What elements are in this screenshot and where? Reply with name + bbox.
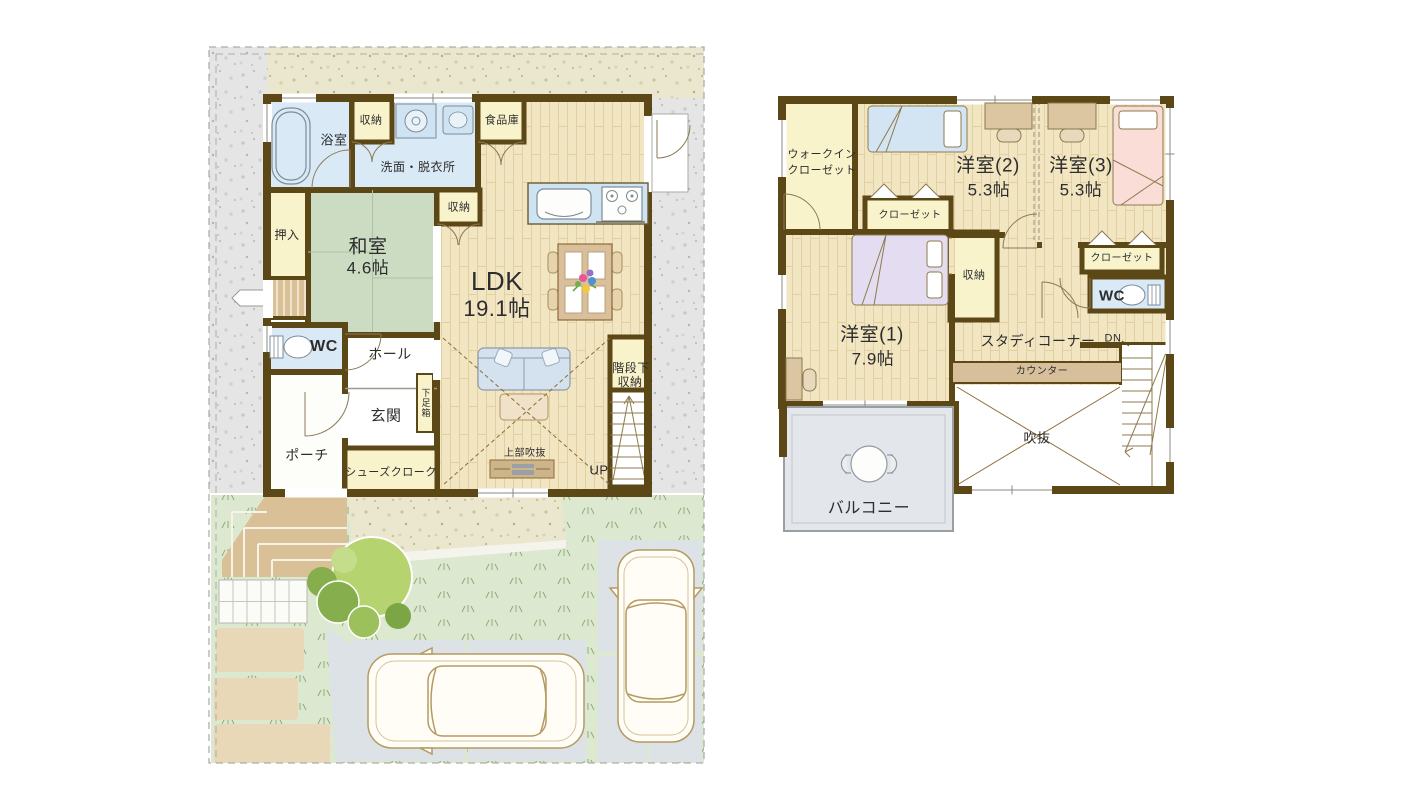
room-label-storage-top: 収納 (360, 116, 383, 127)
floorplan-page: 浴室 収納 洗面・脱衣所 食品庫 押入 和室 4.6帖 収納 LDK 19.1帖… (0, 0, 1422, 800)
car-icon-horizontal (368, 648, 584, 754)
room-label-room3-size: 5.3帖 (1060, 182, 1103, 199)
label-upper-void: 上部吹抜 (504, 449, 546, 459)
gravel-strip-left (209, 47, 267, 493)
label-stairs-up: UP (589, 464, 608, 477)
room-label-study: スタディコーナー (980, 334, 1095, 348)
room-label-under-stairs-2: 収納 (617, 376, 642, 388)
engawa-steps (270, 278, 308, 318)
dining-table-icon (548, 244, 622, 320)
floor1-plan (232, 94, 690, 498)
room-label-wc-2f: WC (1099, 289, 1125, 304)
stairs-2f (1122, 341, 1170, 487)
room-label-genkan: 玄関 (370, 409, 401, 424)
kitchen-sink-icon (537, 189, 591, 219)
room-label-wic-2: クローゼット (788, 166, 857, 177)
sofa-icon (478, 348, 570, 390)
room-label-room2-size: 5.3帖 (968, 182, 1011, 199)
room-label-balcony: バルコニー (828, 501, 910, 517)
room1-door-gap (949, 238, 955, 274)
room-label-room3: 洋室(3) (1049, 157, 1113, 176)
gravel-strip-top (267, 47, 704, 98)
kitchen-counter (528, 183, 648, 224)
bed-icon-room2 (868, 106, 967, 152)
living-table-icon (500, 394, 548, 420)
room-label-shoes-cloak: シューズクローク (345, 468, 436, 479)
basin-icon (443, 106, 473, 134)
room-label-bathroom: 浴室 (320, 134, 347, 147)
floorplan-drawing (0, 0, 1422, 800)
room-label-closet3: クローゼット (1091, 254, 1154, 264)
car-icon-vertical (610, 550, 702, 742)
tv-board-icon (490, 460, 554, 478)
room-label-room1: 洋室(1) (840, 326, 904, 345)
label-counter: カウンター (1016, 367, 1069, 377)
room-label-oshiire: 押入 (274, 229, 299, 241)
room-label-getabako: 下足箱 (421, 388, 430, 418)
label-stairs-dn: DN (1105, 334, 1122, 345)
toilet-icon-2f (1119, 285, 1160, 305)
room-label-room1-size: 7.9帖 (852, 351, 895, 368)
room-label-room2: 洋室(2) (956, 157, 1020, 176)
room-label-porch: ポーチ (285, 448, 329, 462)
bed-icon-room1 (852, 235, 948, 305)
tile-paving (219, 580, 307, 623)
exterior-door (652, 114, 690, 192)
toilet-icon-1f (270, 336, 312, 358)
room-label-washroom: 洗面・脱衣所 (380, 161, 455, 173)
label-void: 吹抜 (1023, 432, 1050, 445)
room-label-closet2: クローゼット (879, 211, 942, 221)
room-porch (267, 372, 345, 493)
room-label-pantry: 食品庫 (485, 116, 520, 127)
room-label-ldk: LDK (471, 268, 523, 294)
room-label-storage-2f: 収納 (963, 271, 986, 282)
room-label-hall: ホール (368, 347, 412, 361)
room-label-washitsu: 和室 (348, 238, 387, 257)
room-label-wc: WC (310, 339, 338, 355)
stove-icon (602, 187, 642, 221)
room-label-washitsu-size: 4.6帖 (347, 260, 390, 277)
room-label-wic-1: ウォークイン (788, 150, 857, 161)
room-label-ldk-size: 19.1帖 (463, 298, 530, 320)
room-label-under-stairs-1: 階段下 (612, 362, 650, 374)
room-label-storage-mid: 収納 (448, 203, 471, 214)
bed-icon-room3 (1113, 106, 1163, 205)
washer-icon (396, 104, 436, 138)
stairs-1f (610, 390, 648, 487)
